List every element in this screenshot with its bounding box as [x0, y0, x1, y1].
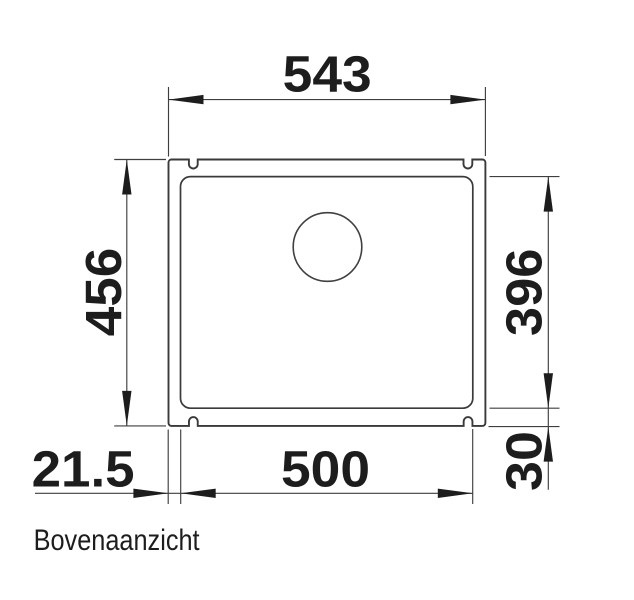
svg-text:543: 543 — [283, 46, 372, 103]
svg-text:Bovenaanzicht: Bovenaanzicht — [34, 524, 200, 557]
svg-text:30: 30 — [495, 431, 552, 491]
svg-text:21.5: 21.5 — [32, 441, 135, 498]
svg-text:396: 396 — [495, 248, 552, 336]
svg-text:500: 500 — [281, 441, 370, 498]
svg-text:456: 456 — [75, 248, 132, 337]
